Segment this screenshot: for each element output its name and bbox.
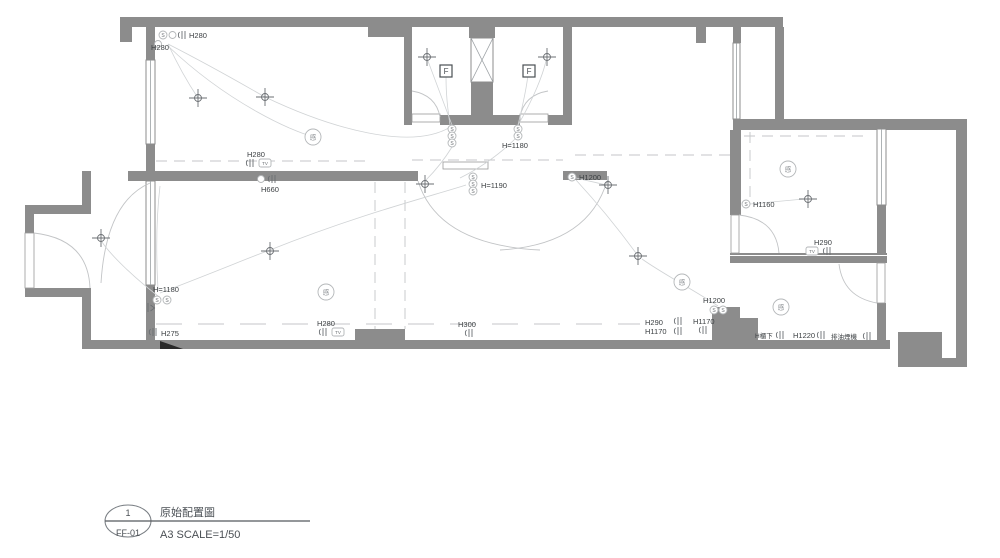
wiring bbox=[157, 186, 160, 290]
label-h1170-kitchen-a: H1170 bbox=[645, 327, 667, 336]
smoke-sensor-icon bbox=[780, 161, 796, 177]
wall-bath-block bbox=[368, 27, 404, 37]
label-h275: H275 bbox=[161, 329, 179, 338]
title-block: 1 FF-01 原始配置圖 A3 SCALE=1/50 bbox=[105, 505, 310, 541]
bath1-door-swing bbox=[412, 91, 440, 117]
ceiling-light-icon bbox=[92, 229, 110, 247]
ceiling-outlet-icon bbox=[258, 176, 265, 183]
wall-middle bbox=[150, 171, 418, 181]
wall-bedroom-top bbox=[733, 119, 965, 130]
ceiling-lights bbox=[92, 48, 817, 265]
ceiling-light-icon bbox=[261, 242, 279, 260]
bedroom-door-swing bbox=[739, 215, 779, 253]
label-h1190-hall: H=1190 bbox=[481, 181, 507, 190]
wiring bbox=[576, 180, 636, 253]
dimmer-icon bbox=[169, 32, 176, 39]
exhaust-fan-icon bbox=[440, 65, 452, 77]
floor-plan-sheet: S TV 感 F bbox=[0, 0, 1000, 558]
switch-icon bbox=[742, 200, 750, 208]
wiring bbox=[168, 46, 311, 136]
ceiling-light-icon bbox=[416, 175, 434, 193]
ceiling-light-icon bbox=[189, 89, 207, 107]
smoke-sensor-icon bbox=[318, 284, 334, 300]
entry-door-leaf bbox=[25, 233, 34, 288]
height-labels: H280 H280 H280 H660 H=1180 H=1190 H1200 … bbox=[151, 31, 858, 341]
label-h1160-bedroom: H1160 bbox=[753, 200, 775, 209]
window-shaft-top-right bbox=[733, 43, 740, 119]
wall-top-stub-b bbox=[733, 27, 741, 43]
wall-bath1-left bbox=[404, 27, 412, 117]
wall-right-outer bbox=[956, 119, 967, 367]
outlet-icon bbox=[178, 31, 185, 39]
label-h1180-entry: H=1180 bbox=[153, 285, 179, 294]
outlets bbox=[149, 31, 870, 340]
switch-icon bbox=[568, 173, 576, 181]
wall-kitchen-right bbox=[877, 303, 886, 342]
switch-icon bbox=[469, 187, 477, 195]
balcony-door-leaf bbox=[877, 263, 885, 303]
drawing-number: 1 bbox=[125, 508, 130, 518]
wall-bottom bbox=[82, 340, 890, 349]
hall-door-swing-a bbox=[418, 181, 540, 250]
switch-icon bbox=[163, 296, 171, 304]
drawing-title: 原始配置圖 bbox=[160, 505, 215, 519]
wall-entry-stub-top bbox=[25, 205, 34, 235]
label-h280-entry-top2: H280 bbox=[151, 43, 169, 52]
bath1-door-leaf bbox=[412, 114, 440, 122]
label-h290-bedroom: H290 bbox=[814, 238, 832, 247]
switch-icon bbox=[153, 296, 161, 304]
switch-icon bbox=[159, 31, 167, 39]
sensors bbox=[305, 129, 796, 315]
wall-shaft-bottom bbox=[471, 82, 493, 117]
label-cabinet-under: H櫃下 bbox=[755, 331, 773, 340]
wall-bottom-stub bbox=[355, 329, 405, 340]
label-h300-living: H300 bbox=[458, 320, 476, 329]
label-h1170-kitchen-b: H1170 bbox=[693, 317, 715, 326]
outlet-icon bbox=[776, 331, 783, 339]
outlet-icon bbox=[319, 328, 326, 336]
tv-outlet-icon bbox=[806, 247, 818, 255]
bedroom-door-leaf bbox=[731, 215, 739, 253]
tv-outlet-icon bbox=[259, 159, 271, 167]
smoke-sensor-icon bbox=[773, 299, 789, 315]
wall-bath1-bottom-a bbox=[404, 115, 412, 125]
switch-icon bbox=[719, 306, 727, 314]
label-h290-kitchen: H290 bbox=[645, 318, 663, 327]
bath2-door-leaf bbox=[520, 114, 548, 122]
ceiling-light-icon bbox=[256, 88, 274, 106]
floor-plan-drawing: S TV 感 F bbox=[0, 0, 1000, 558]
balcony-door-swing bbox=[839, 264, 877, 303]
window-room1-left bbox=[146, 60, 155, 144]
tv-outlet-icon bbox=[332, 328, 344, 336]
window-bedroom-right bbox=[877, 129, 886, 205]
wall-bath2-right bbox=[563, 27, 572, 117]
outlet-icon bbox=[863, 332, 870, 340]
wall-bedroom-right bbox=[877, 205, 886, 253]
label-h280-room1: H280 bbox=[247, 150, 265, 159]
ceiling-light-icon bbox=[799, 190, 817, 208]
label-h1200-kitchen: H1200 bbox=[703, 296, 725, 305]
wall-balcony-block bbox=[898, 332, 942, 360]
walls bbox=[25, 17, 967, 367]
wall-top-stub-a bbox=[696, 27, 706, 43]
entry-door-swing bbox=[34, 233, 90, 288]
wall-shaft-top bbox=[469, 27, 495, 38]
label-h1200-hall: H1200 bbox=[579, 173, 601, 182]
outlet-icon bbox=[246, 159, 253, 167]
ceiling-light-icon bbox=[538, 48, 556, 66]
wall-vestibule-bottom bbox=[25, 288, 87, 297]
wall-bedroom-left bbox=[730, 130, 741, 215]
switch-icon bbox=[448, 139, 456, 147]
outlet-icon bbox=[817, 331, 824, 339]
wall-left-lower bbox=[146, 285, 155, 347]
wall-below-vestibule bbox=[82, 288, 91, 349]
outlet-icon bbox=[674, 327, 681, 335]
label-h1220: H1220 bbox=[793, 331, 815, 340]
label-h280-entry-top: H280 bbox=[189, 31, 207, 40]
switch-icon bbox=[710, 306, 718, 314]
drawing-scale: A3 SCALE=1/50 bbox=[160, 529, 240, 541]
hall-door-swing-b bbox=[500, 181, 607, 250]
exhaust-fan-icon bbox=[523, 65, 535, 77]
ceiling-light-icon bbox=[629, 247, 647, 265]
smoke-sensor-icon bbox=[674, 274, 690, 290]
outlet-icon bbox=[465, 329, 472, 337]
label-h280-living: H280 bbox=[317, 319, 335, 328]
vent-shaft-window bbox=[471, 38, 493, 82]
wall-corner-tl bbox=[120, 17, 132, 42]
sheet-code: FF-01 bbox=[116, 528, 140, 538]
ceiling-light-icon bbox=[418, 48, 436, 66]
wall-shaft-right bbox=[775, 27, 784, 123]
label-range-hood: 排油煙機 bbox=[831, 332, 858, 341]
label-h1180-bath: H=1180 bbox=[502, 141, 528, 150]
label-h660: H660 bbox=[261, 185, 279, 194]
window-living-left bbox=[146, 181, 155, 285]
outlet-icon bbox=[674, 317, 681, 325]
wiring bbox=[160, 185, 466, 293]
wall-top bbox=[120, 17, 783, 27]
outlet-icon bbox=[699, 326, 706, 334]
switch-icon bbox=[514, 132, 522, 140]
smoke-sensor-icon bbox=[305, 129, 321, 145]
